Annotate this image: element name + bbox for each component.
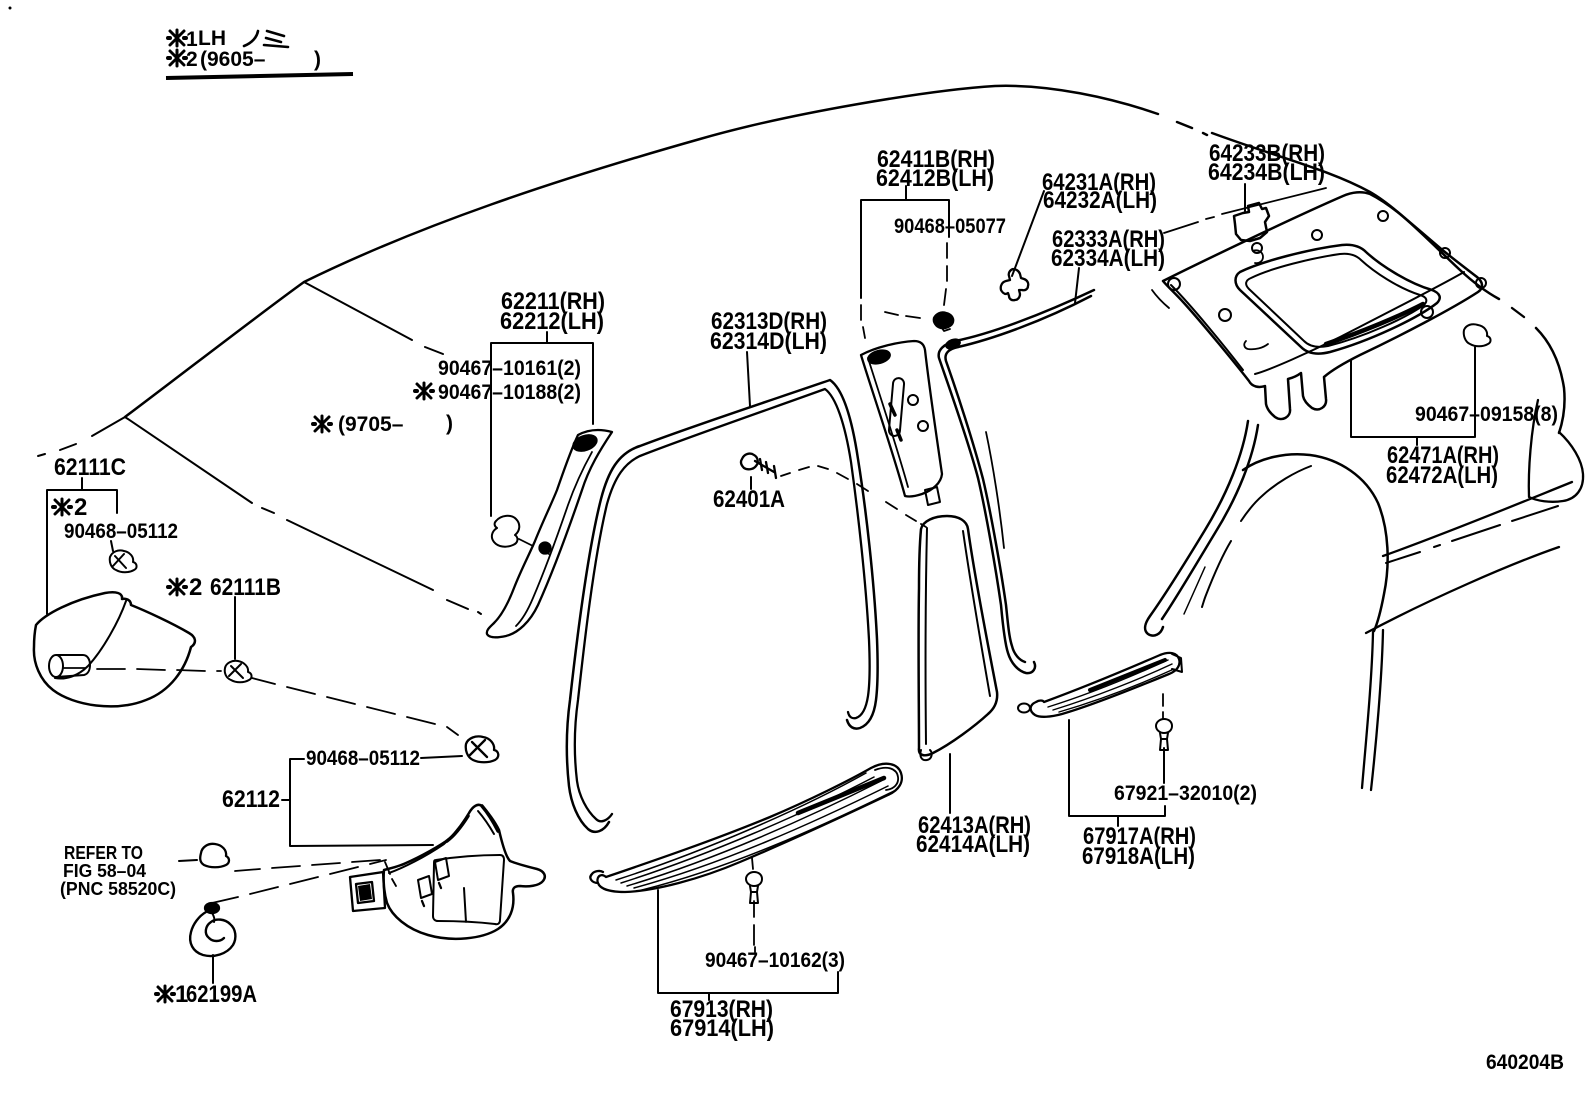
svg-text:62111B: 62111B xyxy=(210,574,281,601)
svg-text:90468–05112: 90468–05112 xyxy=(64,520,178,543)
svg-text:64232A(LH): 64232A(LH) xyxy=(1043,187,1157,214)
svg-text:(9705–: (9705– xyxy=(338,413,404,436)
svg-text:90468–05077: 90468–05077 xyxy=(894,215,1006,238)
svg-text:90467–10188(2): 90467–10188(2) xyxy=(438,381,581,404)
svg-text:2: 2 xyxy=(186,48,198,71)
svg-text:62412B(LH): 62412B(LH) xyxy=(876,165,994,192)
svg-text:62112: 62112 xyxy=(222,786,280,813)
svg-text:2: 2 xyxy=(189,574,202,601)
svg-text:LH: LH xyxy=(198,27,226,50)
svg-text:62401A: 62401A xyxy=(713,486,785,513)
svg-text:90468–05112: 90468–05112 xyxy=(306,747,420,770)
svg-text:62212(LH): 62212(LH) xyxy=(500,308,604,335)
svg-text:90467–10161(2): 90467–10161(2) xyxy=(438,357,581,380)
svg-text:REFER TO: REFER TO xyxy=(64,843,143,863)
svg-text:62334A(LH): 62334A(LH) xyxy=(1051,245,1165,272)
svg-text:64234B(LH): 64234B(LH) xyxy=(1208,159,1325,186)
svg-text:2: 2 xyxy=(74,494,87,521)
svg-text:62414A(LH): 62414A(LH) xyxy=(916,831,1030,858)
svg-text:90467–09158(8): 90467–09158(8) xyxy=(1415,403,1558,426)
svg-text:62111C: 62111C xyxy=(54,454,126,481)
svg-text:67921–32010(2): 67921–32010(2) xyxy=(1114,782,1257,805)
svg-text:(PNC 58520C): (PNC 58520C) xyxy=(60,879,176,899)
svg-text:62199A: 62199A xyxy=(186,981,257,1008)
svg-text:640204B: 640204B xyxy=(1486,1051,1564,1074)
svg-text:FIG 58–04: FIG 58–04 xyxy=(63,861,146,881)
svg-text:62314D(LH): 62314D(LH) xyxy=(710,328,827,355)
svg-text:90467–10162(3): 90467–10162(3) xyxy=(705,949,845,972)
svg-text:): ) xyxy=(446,412,453,435)
svg-text:67918A(LH): 67918A(LH) xyxy=(1082,843,1195,870)
svg-text:62472A(LH): 62472A(LH) xyxy=(1386,462,1498,489)
svg-text:67914(LH): 67914(LH) xyxy=(670,1015,774,1042)
svg-text:(9605–: (9605– xyxy=(200,48,266,71)
svg-text:): ) xyxy=(314,48,321,71)
